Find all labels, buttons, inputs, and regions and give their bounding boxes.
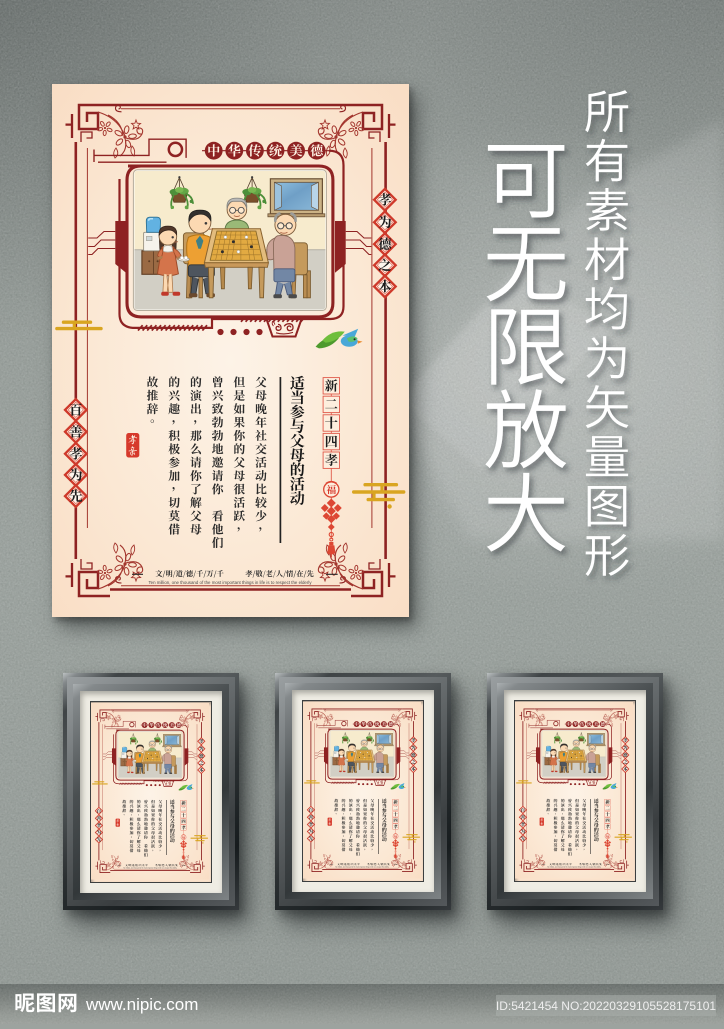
svg-text:ID:5421454 NO:2022032910552817: ID:5421454 NO:20220329105528175101 (496, 999, 717, 1013)
svg-text:www.nipic.com: www.nipic.com (85, 995, 198, 1014)
